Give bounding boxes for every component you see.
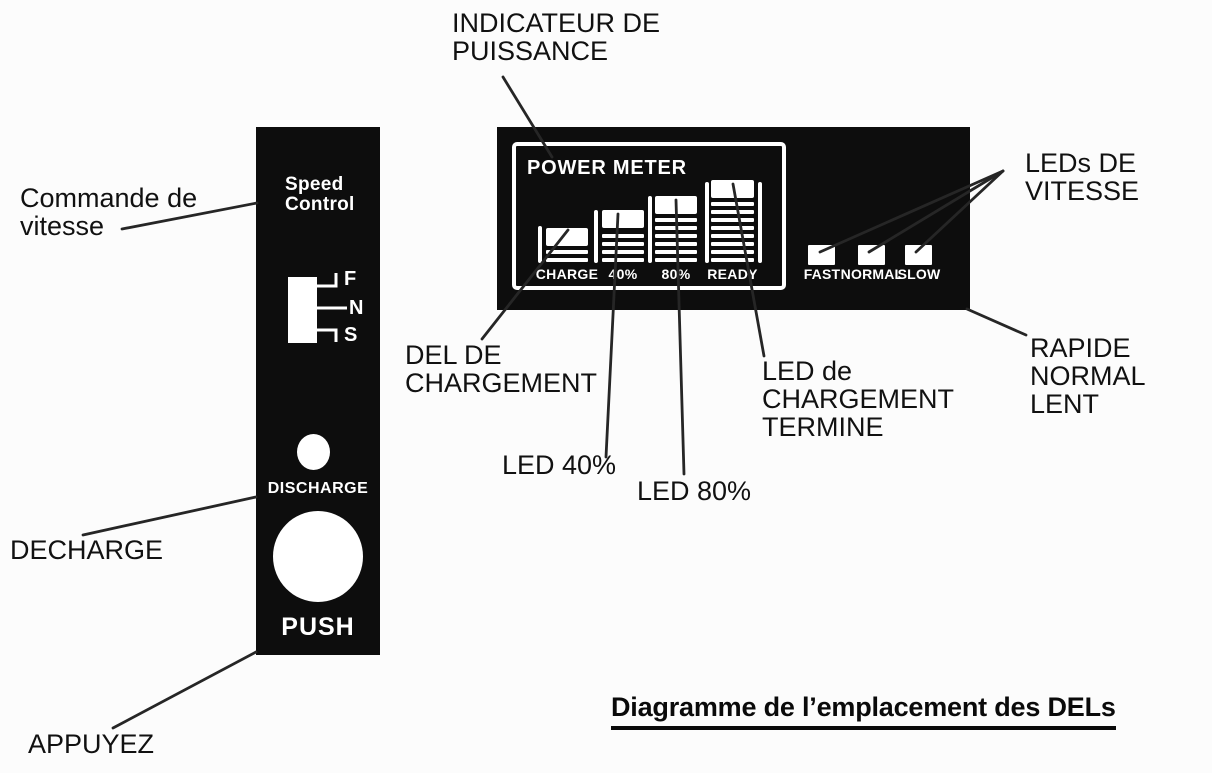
speed-led-normal	[858, 245, 885, 265]
speed-control-label: Speed Control	[285, 175, 355, 215]
callout-indicateur-de-puissance: INDICATEUR DE PUISSANCE	[452, 9, 660, 65]
callout-led-80: LED 80%	[637, 477, 751, 505]
callout-leds-de-vitesse: LEDs DE VITESSE	[1025, 149, 1139, 205]
meter-bar	[655, 258, 697, 262]
meter-bar	[711, 210, 754, 214]
speed-led-slow	[905, 245, 932, 265]
meter-bar	[546, 250, 588, 254]
meter-bar	[711, 218, 754, 222]
callout-del-de-chargement: DEL DE CHARGEMENT	[405, 341, 597, 397]
power-meter-title: POWER METER	[527, 157, 687, 180]
meter-bar	[546, 258, 588, 262]
meter-bar	[602, 242, 644, 246]
discharge-label: DISCHARGE	[256, 480, 380, 498]
meter-bar	[711, 242, 754, 246]
switch-position-slow-label: S	[344, 325, 357, 345]
meter-bar	[655, 226, 697, 230]
switch-position-fast-label: F	[344, 269, 356, 289]
meter-bar	[711, 258, 754, 262]
diagram-page: Speed Control F N S DISCHARGE PUSH POWER…	[0, 0, 1212, 773]
speed-led-label-slow: SLOW	[898, 266, 941, 282]
meter-led-40	[602, 210, 644, 228]
discharge-led	[297, 434, 330, 470]
meter-column-label: CHARGE	[536, 266, 598, 282]
push-button	[273, 511, 363, 602]
meter-divider	[538, 226, 542, 263]
callout-commande-de-vitesse: Commande de vitesse	[20, 184, 197, 240]
leader-line	[83, 497, 256, 535]
speed-led-label-normal: NORMAL	[841, 266, 904, 282]
leader-line	[967, 309, 1026, 335]
meter-divider	[705, 182, 709, 263]
push-label: PUSH	[256, 613, 380, 642]
callout-led-40: LED 40%	[502, 451, 616, 479]
callout-decharge: DECHARGE	[10, 536, 163, 564]
speed-led-label-fast: FAST	[804, 266, 841, 282]
callout-appuyez: APPUYEZ	[28, 730, 154, 758]
leader-line	[113, 652, 256, 728]
meter-bar	[655, 242, 697, 246]
meter-divider	[648, 196, 652, 263]
meter-bar	[711, 234, 754, 238]
speed-switch	[288, 277, 317, 343]
meter-divider	[594, 210, 598, 263]
meter-led-charge	[546, 228, 588, 246]
speed-led-fast	[808, 245, 835, 265]
meter-bar	[602, 234, 644, 238]
diagram-title: Diagramme de l’emplacement des DELs	[611, 692, 1116, 730]
meter-bar	[655, 218, 697, 222]
meter-divider	[758, 182, 762, 263]
meter-column-label: 40%	[609, 266, 638, 282]
meter-bar	[711, 202, 754, 206]
callout-rapide-normal-lent: RAPIDE NORMAL LENT	[1030, 334, 1146, 418]
meter-column-label: READY	[707, 266, 758, 282]
switch-position-normal-label: N	[349, 298, 363, 318]
meter-led-80	[655, 196, 697, 214]
meter-bar	[655, 250, 697, 254]
meter-bar	[602, 258, 644, 262]
callout-led-chargement-termine: LED de CHARGEMENT TERMINE	[762, 357, 954, 441]
meter-column-label: 80%	[662, 266, 691, 282]
meter-bar	[711, 226, 754, 230]
meter-bar	[602, 250, 644, 254]
meter-bar	[655, 234, 697, 238]
meter-bar	[711, 250, 754, 254]
meter-led-ready	[711, 180, 754, 198]
